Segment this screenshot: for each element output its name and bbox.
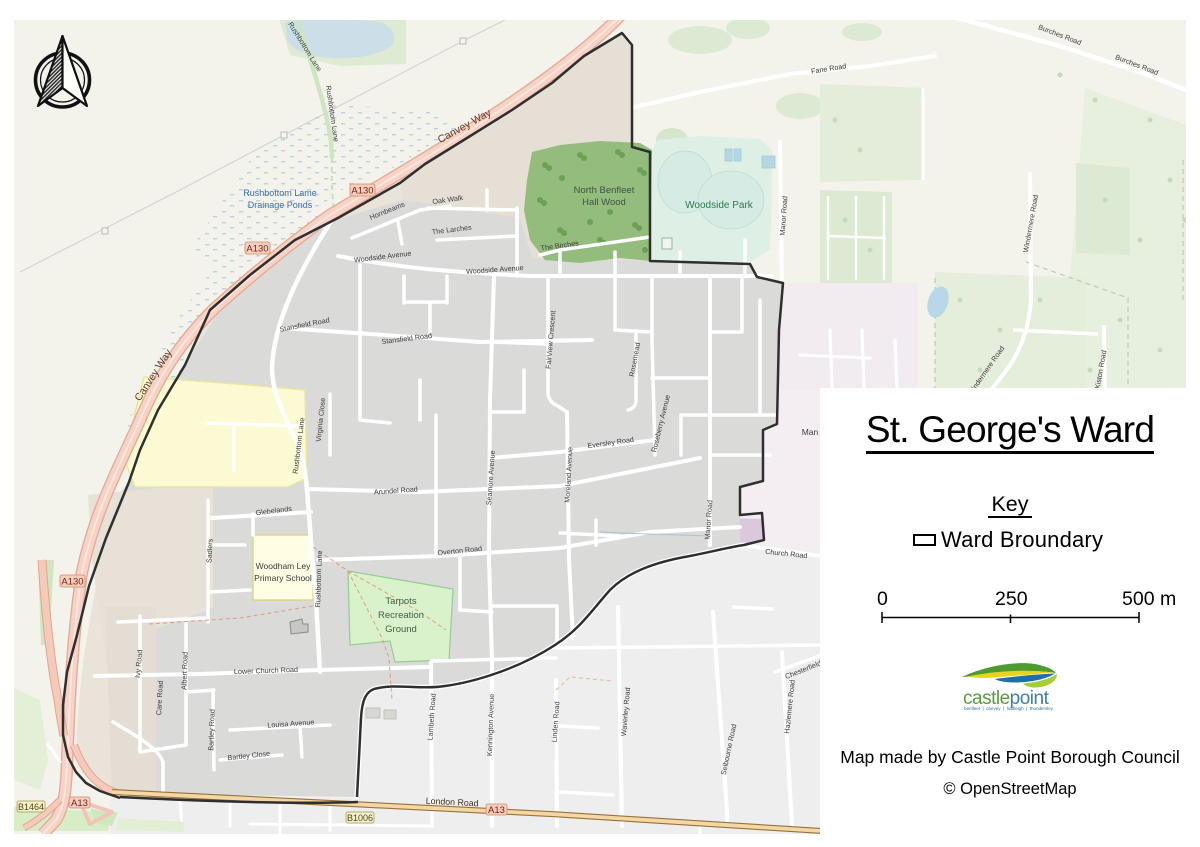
svg-text:Drainage Ponds: Drainage Ponds xyxy=(248,200,313,210)
svg-text:Albert Road: Albert Road xyxy=(179,652,189,690)
svg-text:Man: Man xyxy=(802,427,819,437)
svg-text:Tarpots: Tarpots xyxy=(385,596,416,607)
svg-text:Woodside Park: Woodside Park xyxy=(685,200,754,211)
svg-text:Ground: Ground xyxy=(385,624,417,635)
svg-text:North Benfleet: North Benfleet xyxy=(574,185,635,196)
svg-text:A13: A13 xyxy=(71,798,88,809)
svg-text:Recreation: Recreation xyxy=(378,610,424,621)
svg-text:benfleet | canvey | hadlei: benfleet | canvey | hadleigh | thundersl… xyxy=(964,706,1054,711)
svg-text:A130: A130 xyxy=(61,577,83,588)
svg-text:A130: A130 xyxy=(351,186,373,197)
svg-text:A13: A13 xyxy=(488,805,505,816)
svg-text:Bartley Road: Bartley Road xyxy=(206,709,216,751)
svg-text:Primary School: Primary School xyxy=(254,573,312,583)
svg-text:Sadlers: Sadlers xyxy=(204,538,214,563)
svg-text:B1006: B1006 xyxy=(347,813,373,823)
svg-text:Care Road: Care Road xyxy=(154,680,165,715)
svg-text:Rushbottom Lame: Rushbottom Lame xyxy=(243,188,317,198)
svg-text:Woodham Ley: Woodham Ley xyxy=(256,561,311,571)
svg-text:Hall Wood: Hall Wood xyxy=(582,197,626,208)
svg-text:B1464: B1464 xyxy=(18,802,44,812)
svg-text:A130: A130 xyxy=(246,244,268,255)
